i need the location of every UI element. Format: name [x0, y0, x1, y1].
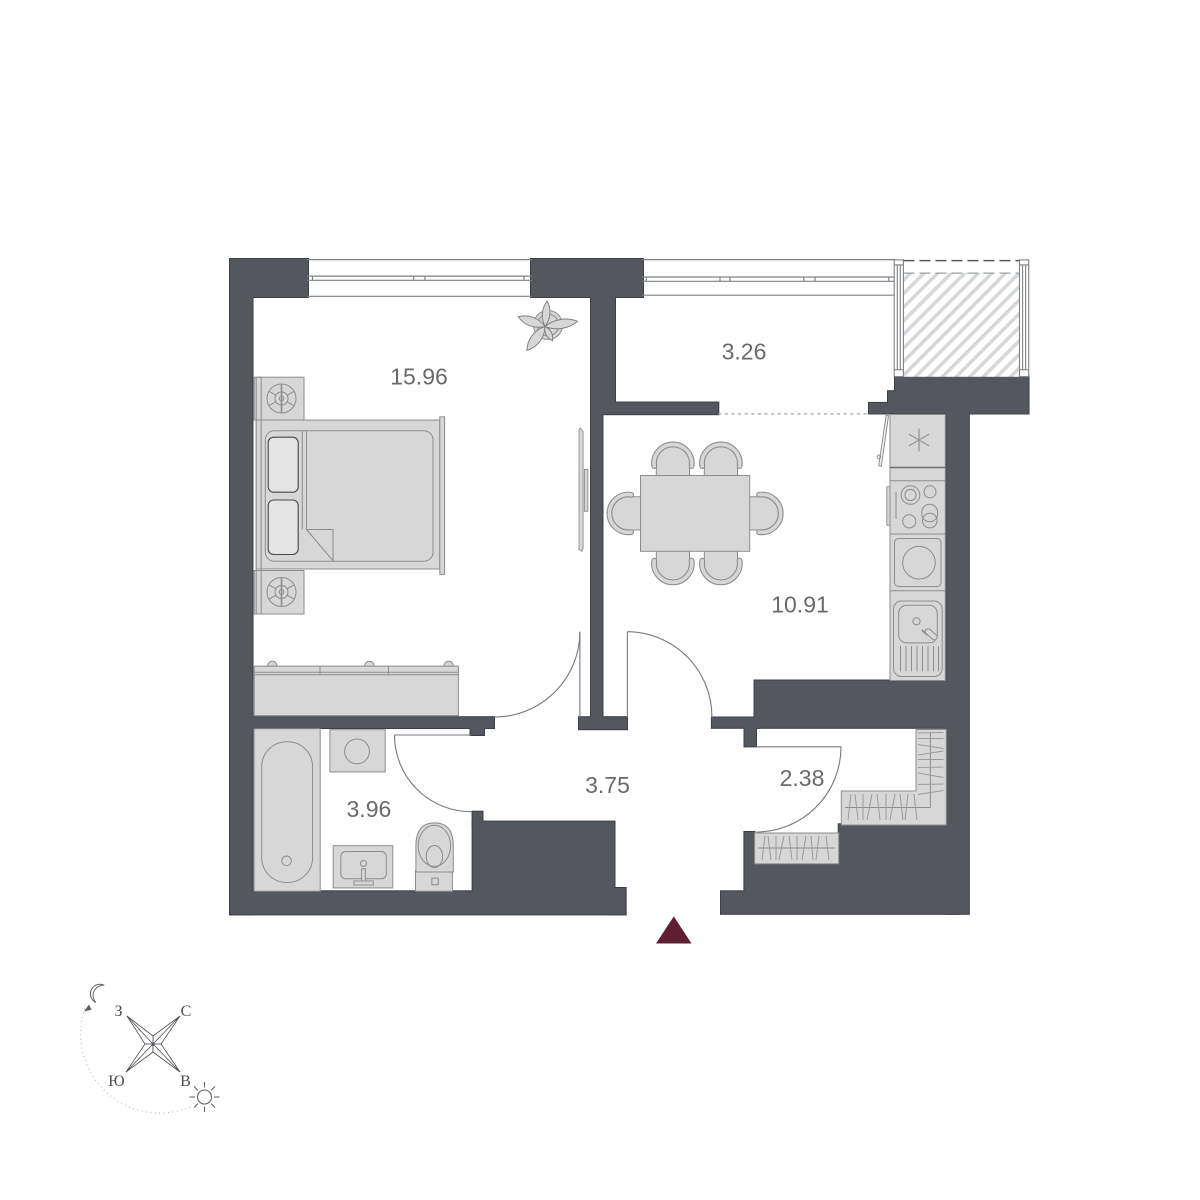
svg-text:10.91: 10.91: [771, 592, 829, 618]
svg-text:3.96: 3.96: [347, 796, 392, 822]
svg-text:3.75: 3.75: [585, 772, 630, 798]
svg-text:3.26: 3.26: [722, 339, 767, 365]
svg-text:Ю: Ю: [108, 1073, 124, 1090]
svg-text:2.38: 2.38: [780, 765, 825, 791]
svg-text:С: С: [181, 1003, 192, 1020]
svg-text:В: В: [180, 1073, 191, 1090]
svg-text:З: З: [114, 1003, 122, 1020]
svg-text:15.96: 15.96: [390, 364, 448, 390]
